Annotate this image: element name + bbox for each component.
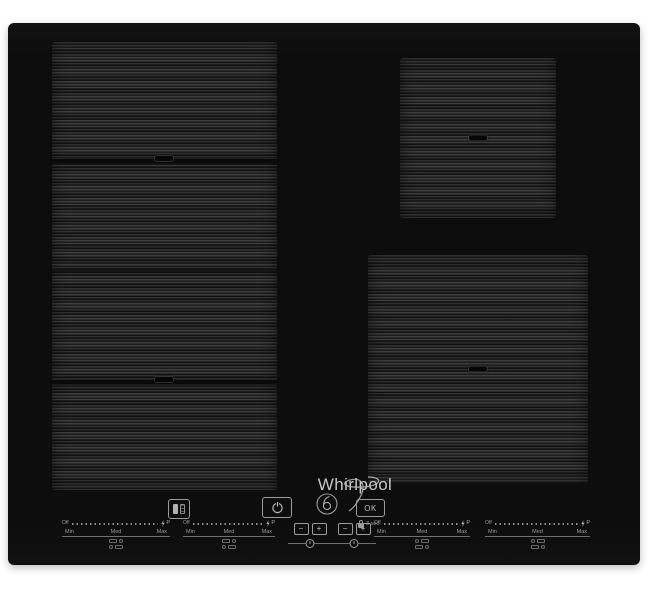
power-slider-zone-1[interactable]: Off P Min Med Max bbox=[62, 520, 170, 549]
clock-icon bbox=[350, 539, 359, 548]
power-button[interactable] bbox=[262, 497, 292, 518]
boost-label: P bbox=[166, 521, 170, 526]
zone-center-mark bbox=[155, 156, 173, 161]
cooking-zone-top-right bbox=[400, 58, 556, 218]
special-function-keys[interactable] bbox=[374, 539, 470, 549]
slider-max-label: Max bbox=[577, 529, 587, 535]
zone-center-mark bbox=[469, 367, 487, 372]
slider-track[interactable] bbox=[384, 523, 459, 525]
special-function-keys[interactable] bbox=[62, 539, 170, 549]
cooking-zone-bottom-right bbox=[368, 255, 588, 483]
special-function-icon bbox=[415, 539, 429, 543]
hob-surface: Whirlpool OK bbox=[8, 23, 640, 565]
slider-off-label[interactable]: Off bbox=[485, 521, 492, 526]
timer-minus-button[interactable]: − bbox=[338, 523, 353, 535]
slider-track[interactable] bbox=[72, 523, 159, 525]
special-function-icon bbox=[222, 539, 236, 543]
power-slider-zone-2[interactable]: Off P Min Med Max bbox=[183, 520, 275, 549]
lightning-icon bbox=[581, 520, 585, 527]
slider-min-label: Min bbox=[488, 529, 497, 535]
special-function-keys[interactable] bbox=[485, 539, 590, 549]
boost-label: P bbox=[466, 521, 470, 526]
slider-med-label: Med bbox=[111, 529, 122, 535]
slider-track[interactable] bbox=[495, 523, 579, 525]
slider-scale: Min Med Max bbox=[62, 528, 170, 537]
special-function-keys[interactable] bbox=[183, 539, 275, 549]
slider-med-label: Med bbox=[532, 529, 543, 535]
timer-control-right: − + bbox=[336, 523, 372, 548]
special-function-icon bbox=[109, 545, 123, 549]
lightning-icon bbox=[161, 520, 165, 527]
slider-off-label[interactable]: Off bbox=[62, 521, 69, 526]
timer-plus-button[interactable]: + bbox=[312, 523, 327, 535]
slider-off-label[interactable]: Off bbox=[183, 521, 190, 526]
clock-icon bbox=[306, 539, 315, 548]
slider-max-label: Max bbox=[157, 529, 167, 535]
flexicook-icon bbox=[173, 504, 185, 514]
slider-max-label: Max bbox=[262, 529, 272, 535]
timer-minus-button[interactable]: − bbox=[294, 523, 309, 535]
ok-button[interactable]: OK bbox=[356, 499, 385, 517]
sixth-sense-button[interactable] bbox=[315, 492, 339, 516]
power-slider-zone-4[interactable]: Off P Min Med Max bbox=[485, 520, 590, 549]
boost-label: P bbox=[586, 521, 590, 526]
slider-max-label: Max bbox=[457, 529, 467, 535]
zone-center-mark bbox=[469, 136, 487, 141]
boost-label: P bbox=[271, 521, 275, 526]
slider-min-label: Min bbox=[377, 529, 386, 535]
zone-divider bbox=[52, 267, 277, 271]
booster-key[interactable]: P bbox=[581, 520, 590, 527]
timer-indicator bbox=[336, 539, 372, 548]
zone-center-mark bbox=[155, 377, 173, 382]
special-function-icon bbox=[109, 539, 123, 543]
special-function-icon bbox=[531, 539, 545, 543]
power-slider-zone-3[interactable]: Off P Min Med Max bbox=[374, 520, 470, 549]
slider-med-label: Med bbox=[417, 529, 428, 535]
timer-plus-button[interactable]: + bbox=[356, 523, 371, 535]
slider-med-label: Med bbox=[224, 529, 235, 535]
slider-min-label: Min bbox=[186, 529, 195, 535]
slider-off-label[interactable]: Off bbox=[374, 521, 381, 526]
booster-key[interactable]: P bbox=[266, 520, 275, 527]
slider-scale: Min Med Max bbox=[485, 528, 590, 537]
lightning-icon bbox=[461, 520, 465, 527]
slider-scale: Min Med Max bbox=[374, 528, 470, 537]
flexicook-button[interactable] bbox=[168, 499, 190, 519]
slider-min-label: Min bbox=[65, 529, 74, 535]
special-function-icon bbox=[415, 545, 429, 549]
slider-scale: Min Med Max bbox=[183, 528, 275, 537]
power-icon bbox=[271, 501, 284, 514]
lightning-icon bbox=[266, 520, 270, 527]
special-function-icon bbox=[222, 545, 236, 549]
sixth-sense-icon bbox=[315, 492, 339, 516]
timer-indicator bbox=[292, 539, 328, 548]
booster-key[interactable]: P bbox=[461, 520, 470, 527]
special-function-icon bbox=[531, 545, 545, 549]
product-photo-induction-hob: Whirlpool OK bbox=[0, 0, 648, 591]
cooking-zone-flexi-left bbox=[52, 42, 277, 490]
timer-control-left: − + bbox=[292, 523, 328, 548]
booster-key[interactable]: P bbox=[161, 520, 170, 527]
slider-track[interactable] bbox=[193, 523, 264, 525]
